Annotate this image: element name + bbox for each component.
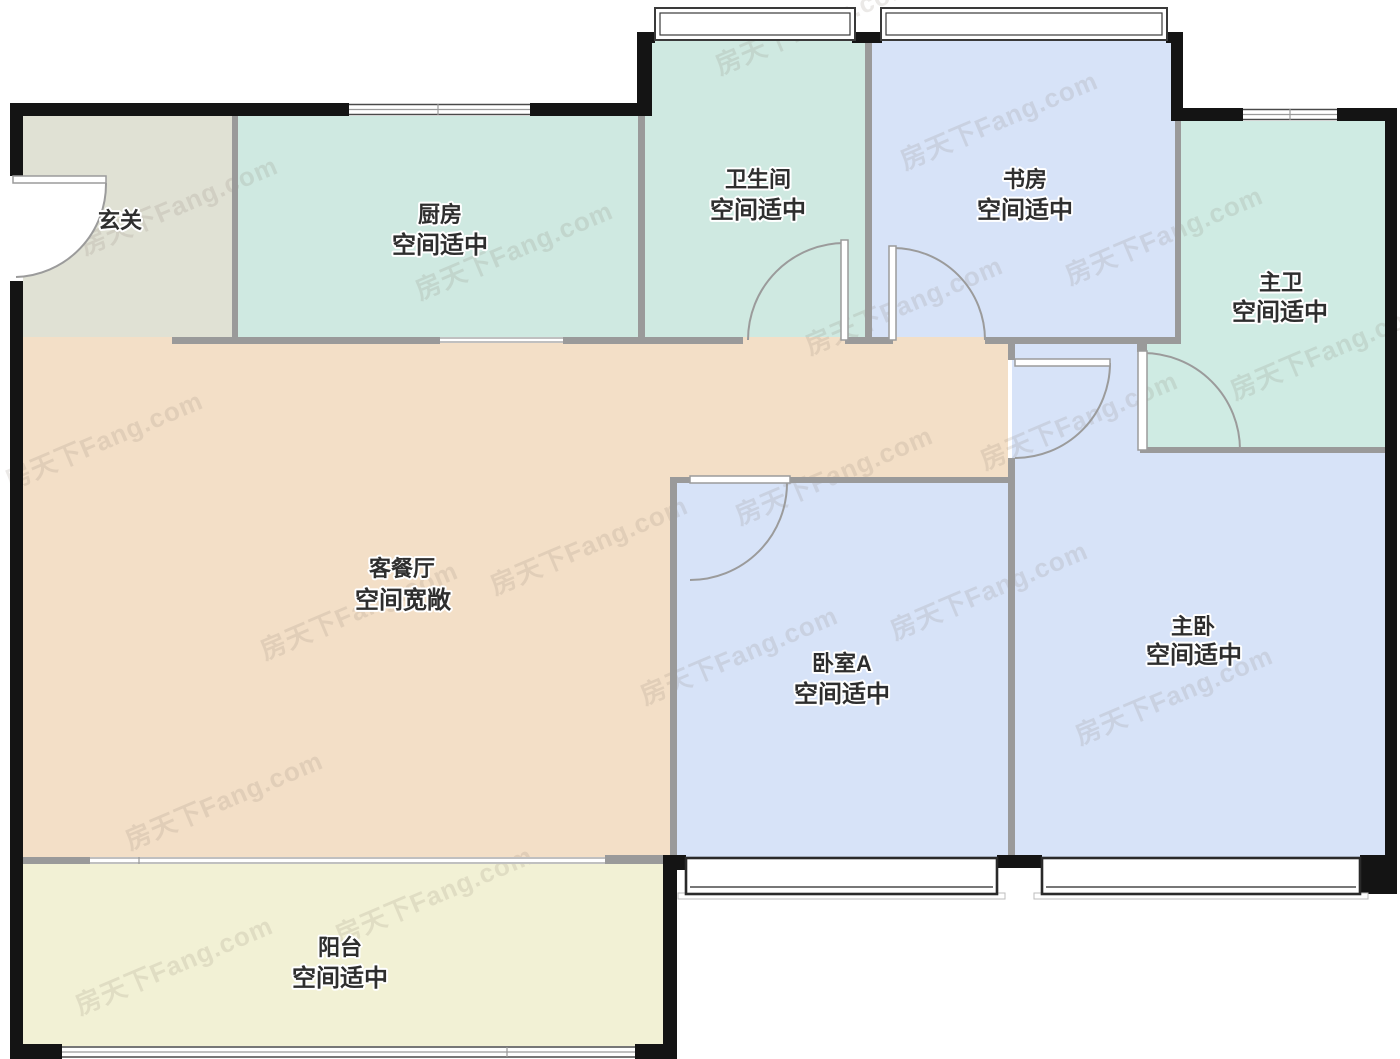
wall-bottom-right-corner bbox=[1360, 855, 1397, 894]
wall-bedrooms-divider bbox=[1008, 458, 1015, 858]
balcony-sliding-door bbox=[90, 857, 605, 864]
study-door-leaf bbox=[889, 246, 896, 340]
wall-left-bottom bbox=[10, 281, 23, 1059]
wall-bedroom-a-top-left-stub bbox=[677, 477, 690, 483]
wall-balcony-left-stub bbox=[13, 857, 90, 864]
study-window bbox=[881, 8, 1167, 40]
wall-left-top bbox=[10, 103, 23, 176]
room-bathroom-label: 卫生间 bbox=[725, 167, 791, 192]
room-bathroom-note: 空间适中 bbox=[710, 196, 806, 224]
master-bath-door-leaf bbox=[1138, 351, 1147, 450]
wall-balcony-right bbox=[663, 855, 677, 1059]
wall-study-master-bath bbox=[1175, 121, 1181, 341]
wall-right bbox=[1385, 108, 1397, 868]
wall-master-bath-top-left bbox=[1180, 108, 1243, 121]
kitchen-window bbox=[349, 103, 530, 116]
room-bedroom-a-label: 卧室A bbox=[812, 651, 872, 676]
wall-top-kitchen-right bbox=[530, 103, 650, 116]
entrance-door-leaf bbox=[13, 176, 106, 183]
floor-plan-page: 房天下Fang.com 房天下Fang.com 房天下Fang.com 房天下F… bbox=[0, 0, 1400, 1059]
wall-bedroom-a-top-right bbox=[790, 477, 1008, 483]
wall-bathroom-study bbox=[865, 43, 872, 340]
wall-living-bedroom-a-vertical bbox=[670, 477, 677, 858]
balcony-window bbox=[62, 1046, 635, 1058]
wall-between-top-windows bbox=[852, 32, 882, 43]
wall-main-horizontal-2 bbox=[563, 337, 743, 344]
room-study-label: 书房 bbox=[1003, 167, 1047, 192]
wall-kitchen-bathroom bbox=[638, 110, 645, 341]
bedroom-a-door-leaf bbox=[690, 476, 790, 483]
room-balcony-label: 阳台 bbox=[318, 935, 362, 960]
room-master-bedroom-label: 主卧 bbox=[1171, 614, 1215, 639]
wall-top-left bbox=[10, 103, 349, 116]
kitchen-opening bbox=[440, 337, 563, 343]
wall-master-bath-master-bedroom bbox=[1140, 447, 1388, 453]
wall-top-nub-1 bbox=[637, 32, 655, 43]
master-bath-window bbox=[1243, 108, 1337, 121]
room-study-note: 空间适中 bbox=[977, 196, 1073, 224]
wall-study-right-vertical bbox=[1171, 32, 1183, 121]
room-kitchen-note: 空间适中 bbox=[392, 231, 488, 259]
master-bedroom-door-leaf bbox=[1015, 359, 1110, 366]
room-master-bedroom-note: 空间适中 bbox=[1146, 641, 1242, 669]
bathroom-door-leaf bbox=[841, 240, 848, 340]
bedroom-a-window bbox=[678, 858, 1005, 899]
wall-step-vertical bbox=[637, 32, 652, 116]
room-living-dining-note: 空间宽敞 bbox=[355, 586, 452, 614]
wall-balcony-right-stub bbox=[605, 855, 665, 864]
wall-bottom-between-windows bbox=[997, 855, 1042, 868]
room-entry-label: 玄关 bbox=[98, 208, 142, 233]
wall-bedrooms-divider-top-stub bbox=[1008, 341, 1015, 360]
wall-main-horizontal-1 bbox=[172, 337, 440, 344]
bathroom-window bbox=[655, 8, 855, 40]
room-master-bath-label: 主卫 bbox=[1259, 270, 1303, 295]
floor-plan: 房天下Fang.com 房天下Fang.com 房天下Fang.com 房天下F… bbox=[0, 0, 1400, 1059]
wall-entry-kitchen bbox=[232, 116, 238, 341]
room-balcony-note: 空间适中 bbox=[292, 964, 388, 992]
room-kitchen-label: 厨房 bbox=[418, 202, 462, 227]
room-bedroom-a-note: 空间适中 bbox=[794, 680, 890, 708]
room-master-bath-note: 空间适中 bbox=[1232, 298, 1328, 326]
room-living-dining-label: 客餐厅 bbox=[369, 556, 435, 581]
master-bedroom-window bbox=[1034, 858, 1368, 899]
wall-bottom-balcony-right bbox=[635, 1044, 677, 1059]
